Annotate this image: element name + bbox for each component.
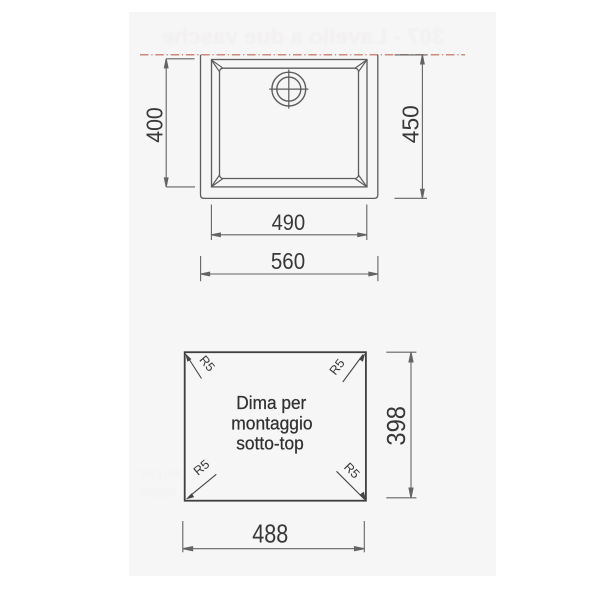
svg-text:307 - Lavello a due vasche: 307 - Lavello a due vasche	[162, 24, 445, 49]
svg-text:450: 450	[397, 105, 423, 143]
svg-text:488: 488	[252, 521, 288, 549]
svg-text:400: 400	[141, 107, 167, 143]
svg-text:sotto-top: sotto-top	[236, 433, 304, 454]
svg-text:398: 398	[381, 406, 411, 446]
svg-text:Dima per: Dima per	[236, 392, 306, 413]
svg-text:560: 560	[271, 248, 305, 274]
svg-text:montaggio: montaggio	[231, 413, 312, 434]
svg-text:aggio: aggio	[140, 483, 177, 500]
svg-text:im per: im per	[139, 465, 181, 482]
svg-text:490: 490	[272, 210, 306, 235]
